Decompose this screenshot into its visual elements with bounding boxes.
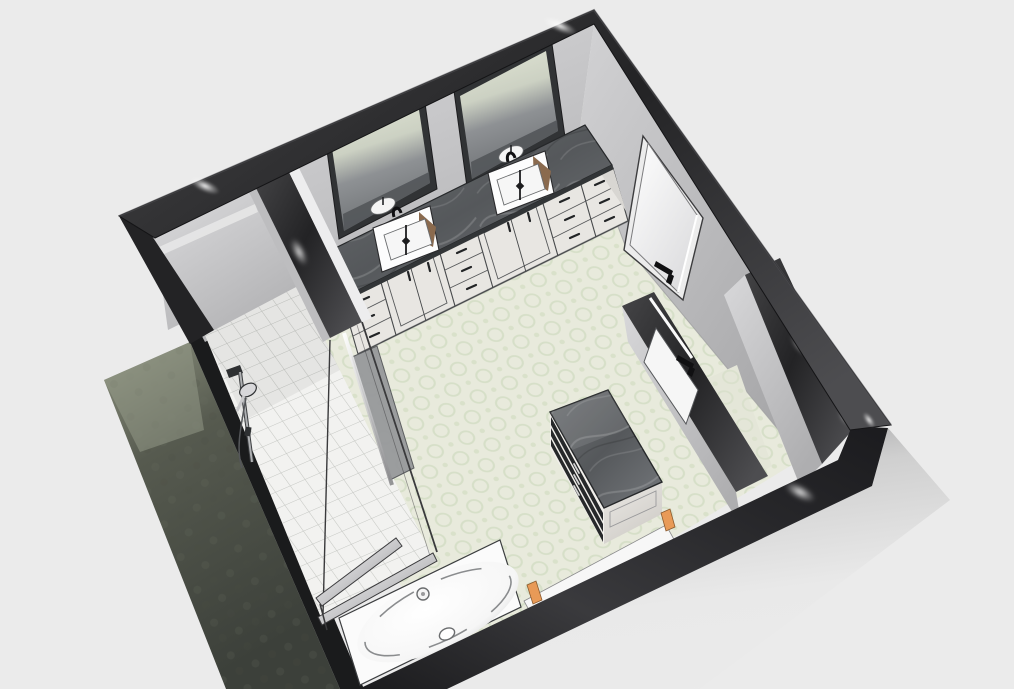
render-viewport[interactable] bbox=[0, 0, 1014, 689]
bathroom-3d-scene[interactable] bbox=[0, 0, 1014, 689]
